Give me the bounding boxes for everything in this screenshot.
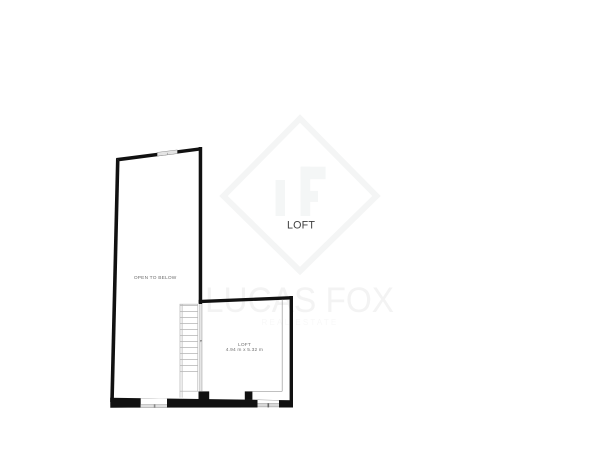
svg-text:LOFT: LOFT <box>287 220 315 232</box>
svg-text:OPEN TO BELOW: OPEN TO BELOW <box>134 275 177 281</box>
svg-text:4.94 m x 5.32 m: 4.94 m x 5.32 m <box>226 347 263 353</box>
svg-text:REAL ESTATE: REAL ESTATE <box>262 318 339 327</box>
